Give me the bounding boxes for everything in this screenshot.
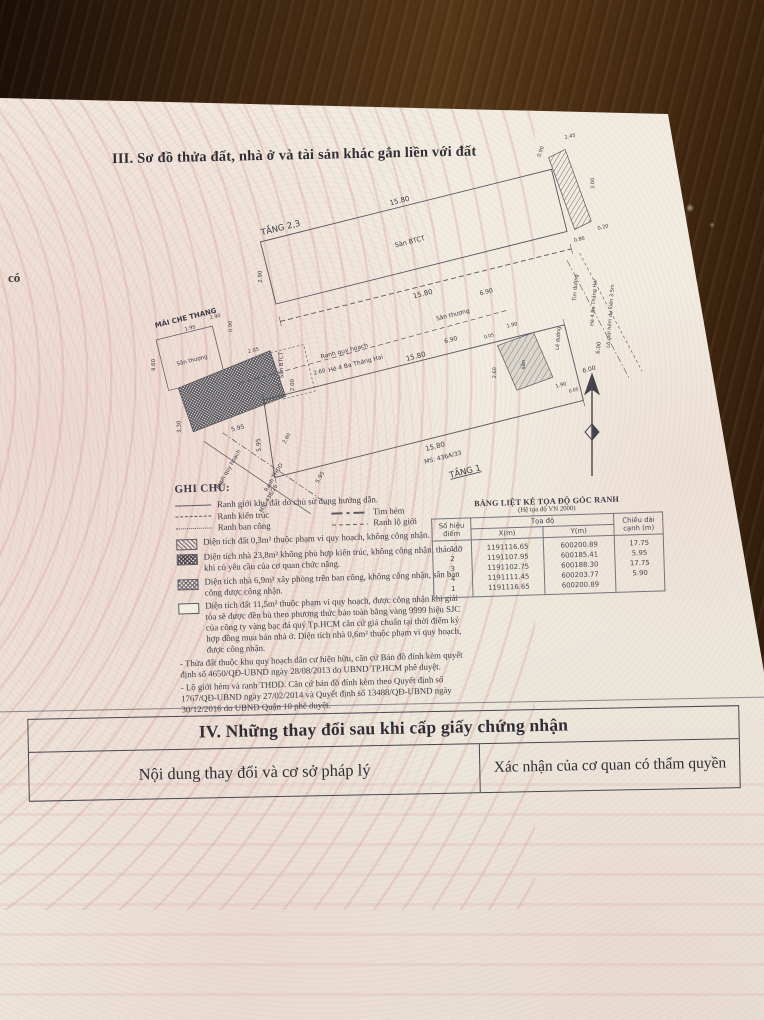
photo-background: có III. Sơ đồ thửa đất, nhà ở và tài sản… (0, 0, 764, 1020)
diagram-label: 0.90 (536, 145, 546, 158)
diagram-label: 6.00 (596, 341, 603, 354)
left-margin-text: có (8, 270, 20, 286)
diagram-label: Tim đường (571, 274, 580, 302)
legend-line-label: Tim hẻm (373, 505, 405, 517)
legend: GHI CHÚ: Ranh giới khu đất do chủ sử dụn… (174, 475, 469, 718)
crosshatch-swatch (177, 579, 198, 591)
empty-swatch (178, 603, 199, 615)
diagram-label: 2.60 (313, 368, 327, 377)
diagram-label: 0.86 (573, 235, 585, 244)
legend-line-label: Ranh ban công (218, 521, 271, 534)
diagram-label: 0.90 (228, 321, 234, 332)
diagram-label: 4.60 (151, 358, 157, 371)
smalldash-line-swatch (331, 524, 367, 526)
diagram-label: 5.95 (255, 438, 263, 452)
diagram-label: Sàn BTCT (394, 234, 426, 249)
solid-line-swatch (175, 504, 211, 508)
certificate-page: có III. Sơ đồ thửa đất, nhà ở và tài sản… (0, 0, 764, 1020)
legend-line-label: Ranh lộ giới (373, 516, 417, 528)
col-length-header: Chiều dài cạnh (m) (614, 512, 663, 536)
diagram-label: sân (520, 359, 527, 369)
dashdot-line-swatch (331, 512, 367, 514)
col-point-header: Số hiệu điểm (432, 518, 472, 541)
coordinate-cell: 1191116.65 (473, 581, 545, 597)
diagram-label: 1.90 (555, 381, 567, 390)
diagram-label: Sân thượng (176, 353, 208, 367)
diagram-label: 2.60 (282, 432, 293, 445)
section4: IV. Những thay đổi sau khi cấp giấy chứn… (27, 705, 740, 802)
dashed-line-swatch (175, 516, 211, 520)
diagram-label: 2.90 (209, 313, 221, 322)
hatch-swatch (176, 539, 197, 551)
crosshatch-dark-swatch (177, 554, 198, 566)
diagram-label: Sàn BTCT (277, 351, 285, 378)
legend-note: - Lộ giới hẻm và ranh THDD. Căn cứ bản đ… (181, 674, 470, 716)
diagram-label: 15.80 (405, 350, 426, 363)
diagram-label: Hẻ 4 Ba Tháng Hai (588, 279, 598, 326)
coordinate-cell: 1 (434, 583, 474, 598)
diagram-label: 1.95 (184, 324, 196, 333)
diagram-label: 3.00 (590, 178, 596, 189)
diagram-label: Lề đường (553, 326, 563, 350)
diagram-label: 2.90 (258, 270, 264, 283)
diagram-label: TẦNG 2,3 (258, 216, 301, 239)
dotted-line-swatch (176, 528, 212, 532)
coordinate-cell: 600200.89 (544, 579, 616, 595)
diagram-label: 2.05 (247, 347, 259, 356)
diagram-label: 0.20 (597, 223, 609, 232)
diagram-label: 6.90 (444, 335, 459, 345)
diagram-label: 1.90 (506, 321, 518, 330)
north-arrow-icon (572, 372, 612, 484)
coordinate-cell (616, 577, 665, 592)
diagram-label: Sân thượng (435, 307, 470, 322)
section4-col-left-header: Nội dung thay đổi và cơ sở pháp lý (29, 744, 481, 801)
coordinate-cell: 1 (432, 540, 472, 555)
diagram-label: 3.30 (177, 420, 183, 433)
diagram-label: 15.80 (412, 288, 433, 301)
section4-col-right-header: Xác nhận của cơ quan có thẩm quyền (480, 739, 739, 792)
diagram-label: 6.90 (479, 287, 494, 297)
cadastral-diagram: TẦNG 2,315.80Sàn BTCT0.902.453.000.200.8… (90, 140, 650, 520)
diagram-label: Lộ giới hẻm dự kiến 3.5m (605, 284, 616, 348)
diagram-label: 2.60 (492, 367, 498, 378)
diagram-label: 15.80 (424, 440, 445, 453)
diagram-label: 0.05 (483, 332, 494, 340)
coordinate-table: BẢNG LIỆT KÊ TỌA ĐỘ GÓC RANH (Hệ tọa độ … (431, 493, 666, 598)
diagram-label: 2.45 (564, 133, 576, 142)
legend-area-text: Diện tích đất 11,5m² thuộc phạm vi quy h… (205, 592, 468, 655)
diagram-label: 2.00 (290, 378, 296, 391)
diagram-label: 5.95 (231, 423, 246, 433)
coordinate-table-grid: Số hiệu điểm Tọa độ Chiều dài cạnh (m) X… (431, 511, 665, 598)
legend-line-label: Ranh kiến trúc (217, 509, 269, 522)
